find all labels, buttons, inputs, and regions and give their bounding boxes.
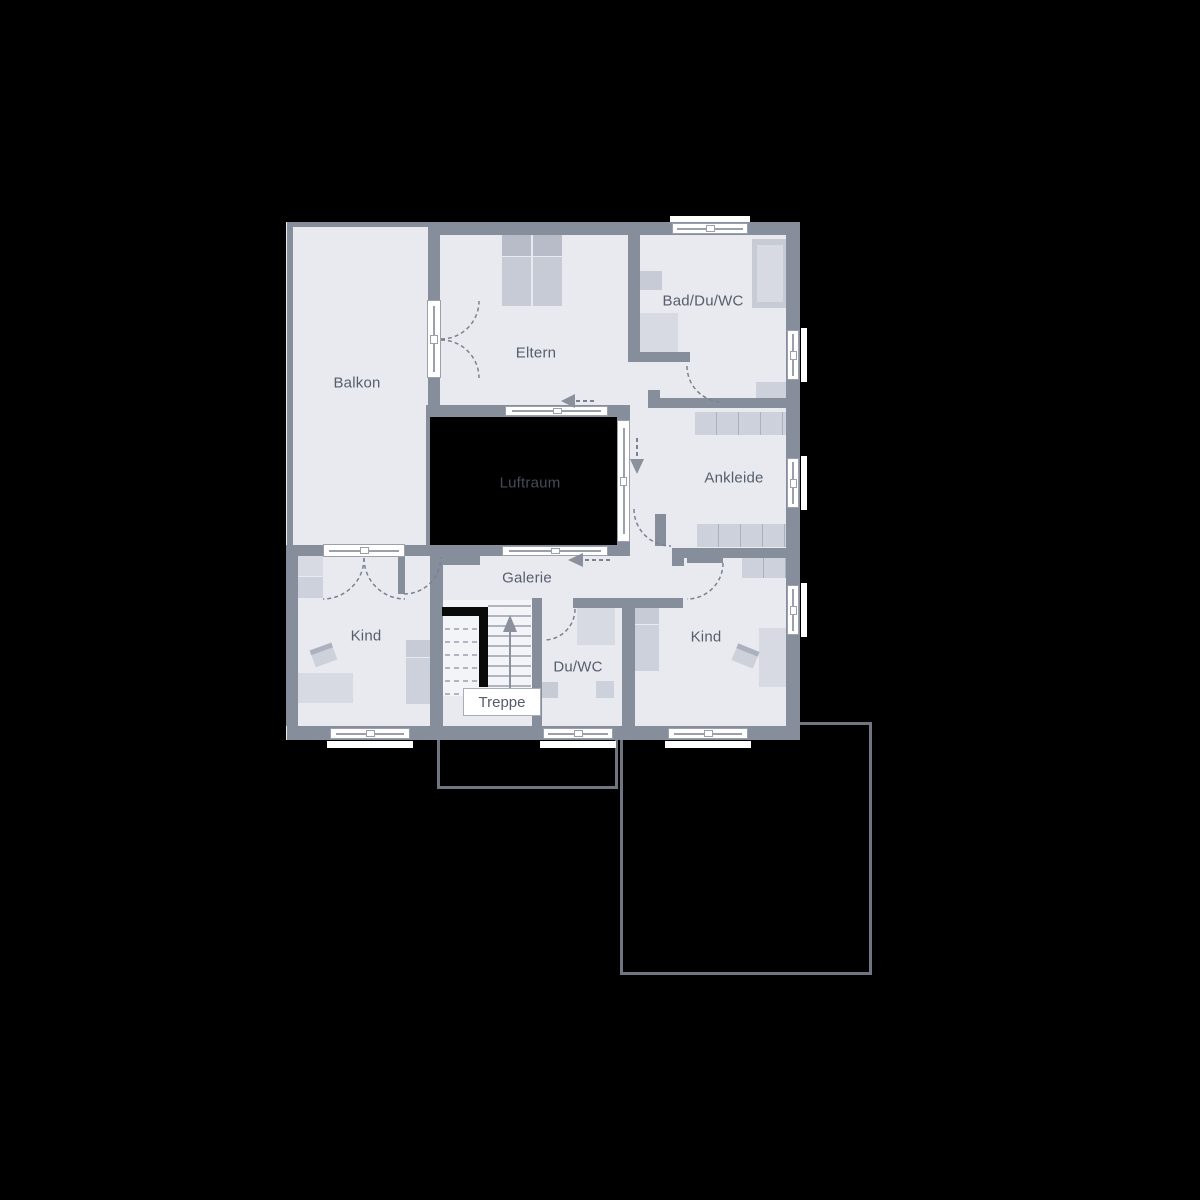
room-label-kind-east: Kind [691, 629, 722, 646]
room-label-du-wc: Du/WC [553, 659, 602, 676]
floor-plan-canvas: Balkon Eltern Bad/Du/WC Luftraum Ankleid… [0, 0, 1200, 1200]
room-label-eltern: Eltern [516, 345, 556, 362]
room-label-kind-west: Kind [351, 628, 382, 645]
room-label-ankleide: Ankleide [704, 470, 763, 487]
room-label-galerie: Galerie [502, 570, 552, 587]
door-arcs-arrows-stairs-layer [0, 0, 1200, 1200]
circulation-arrow-left [561, 394, 594, 408]
room-label-bad-du-wc: Bad/Du/WC [663, 293, 744, 310]
room-label-balkon: Balkon [333, 375, 380, 392]
room-label-luftraum: Luftraum [500, 475, 561, 492]
stair-cut-mark [442, 607, 488, 687]
circulation-arrow-down [630, 438, 644, 474]
room-label-treppe: Treppe [463, 688, 541, 716]
circulation-arrow-left [568, 553, 610, 567]
stair-treads-dashed [445, 629, 480, 694]
